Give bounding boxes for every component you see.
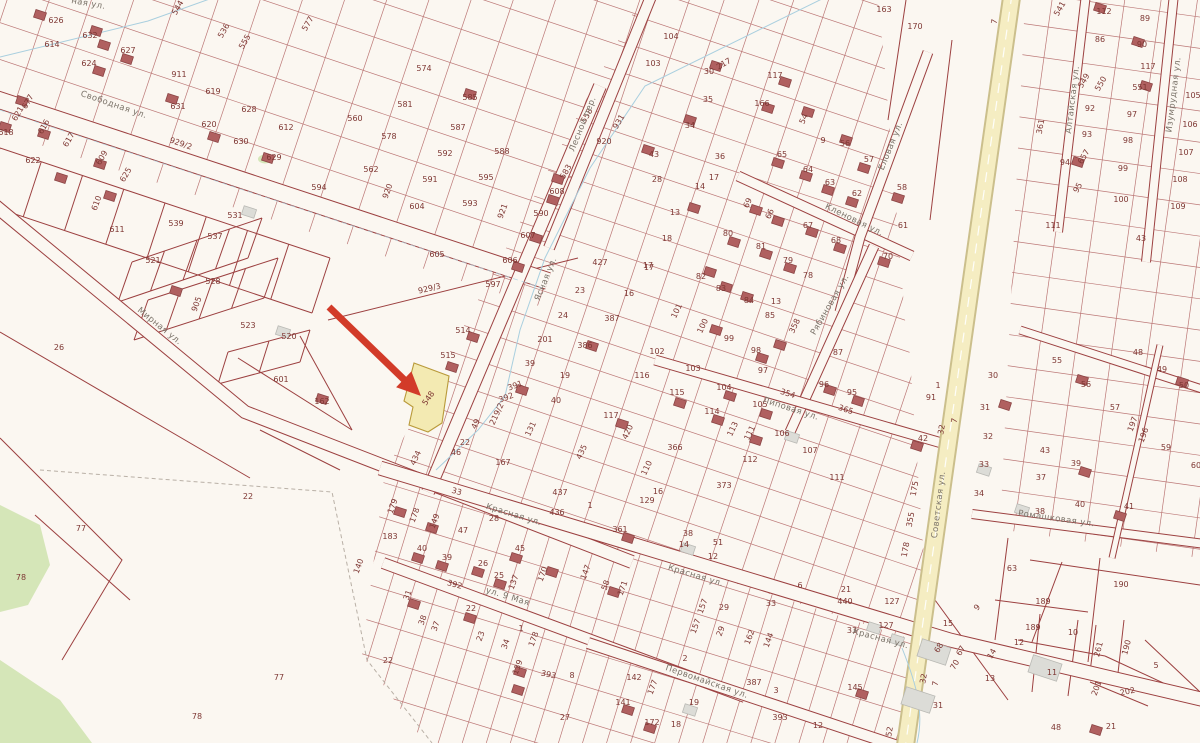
svg-text:39: 39 [442,553,452,562]
svg-text:13: 13 [985,674,995,683]
svg-text:592: 592 [437,149,452,158]
svg-text:618: 618 [0,128,14,137]
svg-text:920: 920 [596,137,611,146]
svg-text:183: 183 [382,532,397,541]
cadastral-map-viewport[interactable]: 548 626614632627624911619631620628630612… [0,0,1200,743]
svg-text:26: 26 [54,343,64,352]
svg-text:170: 170 [907,22,922,31]
svg-text:117: 117 [767,71,782,80]
svg-text:601: 601 [273,375,288,384]
svg-text:32: 32 [936,424,947,436]
svg-text:624: 624 [81,59,96,68]
svg-text:100: 100 [1113,195,1128,204]
svg-text:83: 83 [716,284,726,293]
svg-text:632: 632 [82,31,97,40]
svg-text:15: 15 [943,619,953,628]
svg-text:574: 574 [416,64,431,73]
svg-text:591: 591 [422,175,437,184]
svg-text:142: 142 [626,673,641,682]
svg-text:43: 43 [1136,234,1146,243]
svg-text:172: 172 [644,718,659,727]
svg-text:67: 67 [803,221,813,230]
svg-text:43: 43 [649,150,659,159]
svg-text:107: 107 [1178,148,1193,157]
svg-text:21: 21 [1106,722,1116,731]
svg-text:12: 12 [813,721,823,730]
svg-text:16: 16 [653,487,663,496]
svg-text:528: 528 [205,277,220,286]
svg-text:84: 84 [744,296,754,305]
svg-text:607: 607 [520,231,535,240]
svg-text:55: 55 [1052,356,1062,365]
svg-text:78: 78 [16,573,26,582]
svg-text:31: 31 [980,403,990,412]
svg-text:39: 39 [525,359,535,368]
svg-text:162: 162 [314,397,329,406]
svg-text:630: 630 [233,137,248,146]
svg-text:436: 436 [549,508,564,517]
svg-text:17: 17 [709,173,719,182]
svg-text:59: 59 [1161,443,1171,452]
svg-text:14: 14 [679,540,689,549]
svg-text:40: 40 [1075,500,1085,509]
svg-text:386: 386 [577,341,592,350]
svg-text:33: 33 [766,599,776,608]
svg-text:1: 1 [518,624,523,633]
svg-text:612: 612 [278,123,293,132]
svg-text:620: 620 [201,120,216,129]
svg-text:91: 91 [926,393,936,402]
svg-text:387: 387 [746,678,761,687]
svg-text:12: 12 [708,552,718,561]
svg-text:629: 629 [266,153,281,162]
svg-text:28: 28 [652,175,662,184]
svg-text:36: 36 [715,152,725,161]
svg-text:189: 189 [1035,597,1050,606]
svg-text:104: 104 [663,32,678,41]
svg-text:48: 48 [1051,723,1061,732]
svg-text:40: 40 [417,544,427,553]
svg-text:5: 5 [1153,661,1158,670]
svg-text:47: 47 [458,526,468,535]
svg-text:106: 106 [1182,120,1197,129]
svg-text:63: 63 [1007,564,1017,573]
svg-text:622: 622 [25,156,40,165]
svg-text:43: 43 [1040,446,1050,455]
svg-text:387: 387 [604,314,619,323]
svg-text:22: 22 [383,656,393,665]
svg-text:361: 361 [612,525,627,534]
svg-text:17: 17 [643,261,653,270]
svg-text:48: 48 [1133,348,1143,357]
svg-text:117: 117 [1140,62,1155,71]
svg-text:68: 68 [831,236,841,245]
svg-text:58: 58 [897,183,907,192]
svg-text:626: 626 [48,16,63,25]
svg-text:619: 619 [205,87,220,96]
svg-text:588: 588 [494,147,509,156]
svg-text:2: 2 [682,654,687,663]
svg-text:99: 99 [1118,164,1128,173]
svg-text:96: 96 [819,380,829,389]
svg-text:190: 190 [1113,580,1128,589]
svg-text:90: 90 [1137,40,1147,49]
svg-text:103: 103 [685,364,700,373]
svg-text:57: 57 [1110,403,1120,412]
svg-text:521: 521 [145,256,160,265]
svg-text:103: 103 [645,59,660,68]
svg-text:13: 13 [670,208,680,217]
svg-text:81: 81 [756,242,766,251]
svg-text:12: 12 [1014,638,1024,647]
svg-text:551: 551 [1132,83,1147,92]
svg-text:127: 127 [884,597,899,606]
svg-text:6: 6 [797,581,802,590]
svg-text:51: 51 [713,538,723,547]
svg-text:102: 102 [649,347,664,356]
svg-text:29: 29 [719,603,729,612]
svg-text:99: 99 [724,334,734,343]
svg-text:95: 95 [847,388,857,397]
svg-text:57: 57 [864,155,874,164]
svg-text:80: 80 [723,229,733,238]
svg-text:21: 21 [841,585,851,594]
svg-text:393: 393 [772,713,787,722]
svg-text:514: 514 [455,326,470,335]
svg-text:539: 539 [168,219,183,228]
svg-text:26: 26 [478,559,488,568]
svg-text:595: 595 [478,173,493,182]
svg-text:9: 9 [820,136,825,145]
svg-text:41: 41 [1124,502,1134,511]
svg-text:10: 10 [1068,628,1078,637]
svg-text:129: 129 [639,496,654,505]
svg-text:366: 366 [667,443,682,452]
svg-text:141: 141 [615,698,630,707]
svg-text:23: 23 [575,286,585,295]
svg-text:18: 18 [671,720,681,729]
svg-text:578: 578 [381,132,396,141]
svg-text:531: 531 [227,211,242,220]
svg-text:631: 631 [170,102,185,111]
svg-text:614: 614 [44,40,59,49]
svg-text:163: 163 [876,5,891,14]
svg-text:628: 628 [241,105,256,114]
svg-text:62: 62 [852,189,862,198]
svg-text:373: 373 [716,481,731,490]
svg-text:61: 61 [898,221,908,230]
svg-text:627: 627 [120,46,135,55]
svg-text:111: 111 [829,473,844,482]
svg-text:3: 3 [773,686,778,695]
svg-text:93: 93 [1082,130,1092,139]
svg-text:167: 167 [495,458,510,467]
svg-text:34: 34 [974,489,984,498]
svg-text:109: 109 [1170,202,1185,211]
svg-text:13: 13 [771,297,781,306]
svg-text:86: 86 [1095,35,1105,44]
svg-text:11: 11 [1047,668,1057,677]
svg-text:56: 56 [840,139,850,148]
svg-text:77: 77 [76,524,86,533]
svg-text:40: 40 [551,396,561,405]
svg-text:112: 112 [1096,7,1111,16]
svg-text:98: 98 [1123,136,1133,145]
svg-text:145: 145 [847,683,862,692]
svg-text:78: 78 [192,712,202,721]
svg-text:127: 127 [878,621,893,630]
svg-text:562: 562 [363,165,378,174]
svg-text:50: 50 [1179,381,1189,390]
svg-text:64: 64 [803,165,813,174]
svg-text:115: 115 [669,388,684,397]
svg-text:70: 70 [883,252,893,261]
svg-text:581: 581 [397,100,412,109]
svg-text:31: 31 [933,701,943,710]
svg-text:116: 116 [634,371,649,380]
svg-text:49: 49 [1157,365,1167,374]
svg-text:114: 114 [704,407,719,416]
svg-text:63: 63 [825,178,835,187]
svg-text:30: 30 [988,371,998,380]
svg-text:56: 56 [1081,380,1091,389]
svg-text:604: 604 [409,202,424,211]
svg-text:94: 94 [1060,158,1070,167]
svg-text:107: 107 [802,446,817,455]
svg-text:108: 108 [1172,175,1187,184]
svg-text:87: 87 [833,348,843,357]
svg-text:105: 105 [1185,91,1200,100]
svg-text:19: 19 [689,698,699,707]
svg-text:45: 45 [515,544,525,553]
svg-text:515: 515 [440,351,455,360]
svg-text:608: 608 [549,187,564,196]
svg-text:597: 597 [485,280,500,289]
svg-text:166: 166 [754,99,769,108]
svg-text:16: 16 [624,289,634,298]
svg-text:560: 560 [347,114,362,123]
svg-text:97: 97 [1127,110,1137,119]
svg-text:34: 34 [685,121,695,130]
svg-text:42: 42 [918,434,928,443]
svg-text:25: 25 [494,571,504,580]
svg-text:523: 523 [240,321,255,330]
svg-text:30: 30 [704,67,714,76]
svg-text:18: 18 [662,234,672,243]
svg-text:98: 98 [751,346,761,355]
svg-text:82: 82 [696,272,706,281]
svg-text:606: 606 [502,256,517,265]
svg-text:1: 1 [587,501,592,510]
svg-text:33: 33 [979,460,989,469]
svg-text:32: 32 [918,673,929,685]
svg-text:37: 37 [1036,473,1046,482]
svg-text:104: 104 [716,383,731,392]
svg-text:117: 117 [603,411,618,420]
svg-text:38: 38 [683,529,693,538]
svg-text:911: 911 [171,70,186,79]
svg-text:594: 594 [311,183,326,192]
svg-text:587: 587 [450,123,465,132]
svg-text:106: 106 [774,429,789,438]
svg-text:78: 78 [803,271,813,280]
svg-text:605: 605 [429,250,444,259]
svg-text:32: 32 [983,432,993,441]
svg-text:611: 611 [109,225,124,234]
svg-text:39: 39 [1071,459,1081,468]
svg-text:8: 8 [569,671,574,680]
svg-text:14: 14 [695,182,705,191]
svg-text:437: 437 [552,488,567,497]
svg-text:585: 585 [462,93,477,102]
svg-text:427: 427 [592,258,607,267]
svg-text:201: 201 [537,335,552,344]
svg-text:89: 89 [1140,14,1150,23]
svg-text:590: 590 [533,209,548,218]
svg-text:52: 52 [884,726,895,738]
svg-text:35: 35 [703,95,713,104]
svg-text:19: 19 [560,371,570,380]
svg-text:520: 520 [281,332,296,341]
svg-text:111: 111 [1045,221,1060,230]
svg-text:593: 593 [462,199,477,208]
svg-text:22: 22 [460,438,470,447]
svg-text:60: 60 [1191,461,1200,470]
svg-text:537: 537 [207,232,222,241]
svg-text:97: 97 [758,366,768,375]
svg-text:24: 24 [558,311,568,320]
svg-text:79: 79 [783,256,793,265]
svg-text:77: 77 [274,673,284,682]
svg-text:22: 22 [243,492,253,501]
svg-text:440: 440 [837,597,852,606]
svg-text:27: 27 [560,713,570,722]
svg-text:189: 189 [1025,623,1040,632]
cadastral-map[interactable]: 548 626614632627624911619631620628630612… [0,0,1200,743]
svg-text:65: 65 [777,150,787,159]
svg-text:112: 112 [742,455,757,464]
svg-text:85: 85 [765,311,775,320]
svg-text:92: 92 [1085,104,1095,113]
svg-text:1: 1 [935,381,940,390]
svg-text:22: 22 [466,604,476,613]
svg-text:46: 46 [451,448,461,457]
